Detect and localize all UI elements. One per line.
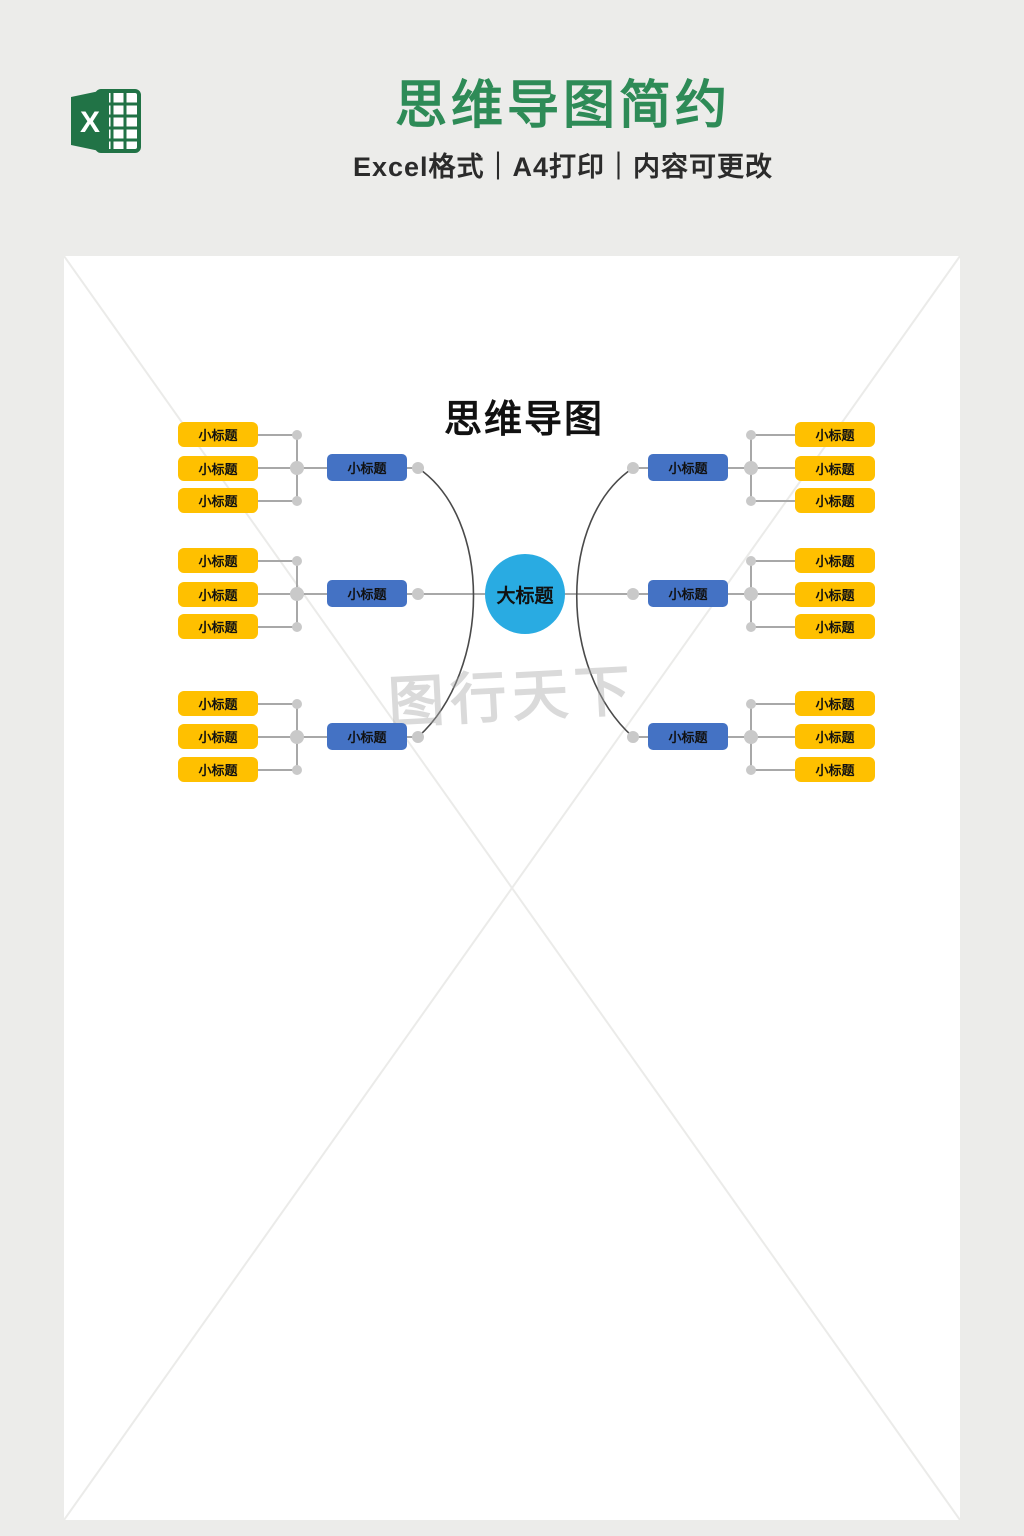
leaf-node: 小标题	[178, 582, 258, 607]
leaf-node: 小标题	[795, 691, 875, 716]
template-subtitle: Excel格式｜A4打印｜内容可更改	[102, 145, 1024, 184]
leaf-node: 小标题	[795, 456, 875, 481]
leaf-node: 小标题	[178, 614, 258, 639]
center-node: 大标题	[485, 554, 565, 634]
mindmap-title: 思维导图	[374, 388, 674, 443]
leaf-node: 小标题	[795, 724, 875, 749]
leaf-node: 小标题	[178, 724, 258, 749]
leaf-node: 小标题	[795, 488, 875, 513]
branch-node: 小标题	[327, 723, 407, 750]
leaf-node: 小标题	[178, 456, 258, 481]
leaf-node: 小标题	[178, 422, 258, 447]
leaf-node: 小标题	[795, 582, 875, 607]
document-page: 思维导图 图行天下 大标题 小标题 小标题 小标题 小标题 小标题 小标题 小标…	[64, 256, 960, 1520]
leaf-node: 小标题	[795, 757, 875, 782]
leaf-node: 小标题	[795, 614, 875, 639]
branch-node: 小标题	[327, 580, 407, 607]
leaf-node: 小标题	[795, 548, 875, 573]
template-title: 思维导图简约	[102, 78, 1024, 135]
leaf-node: 小标题	[795, 422, 875, 447]
branch-node: 小标题	[648, 454, 728, 481]
leaf-node: 小标题	[178, 488, 258, 513]
branch-node: 小标题	[327, 454, 407, 481]
leaf-node: 小标题	[178, 691, 258, 716]
leaf-node: 小标题	[178, 548, 258, 573]
banner: X 思维导图简约 Excel格式｜A4打印｜内容可更改	[0, 0, 1024, 256]
branch-node: 小标题	[648, 580, 728, 607]
branch-node: 小标题	[648, 723, 728, 750]
excel-icon-letter: X	[80, 106, 100, 139]
leaf-node: 小标题	[178, 757, 258, 782]
